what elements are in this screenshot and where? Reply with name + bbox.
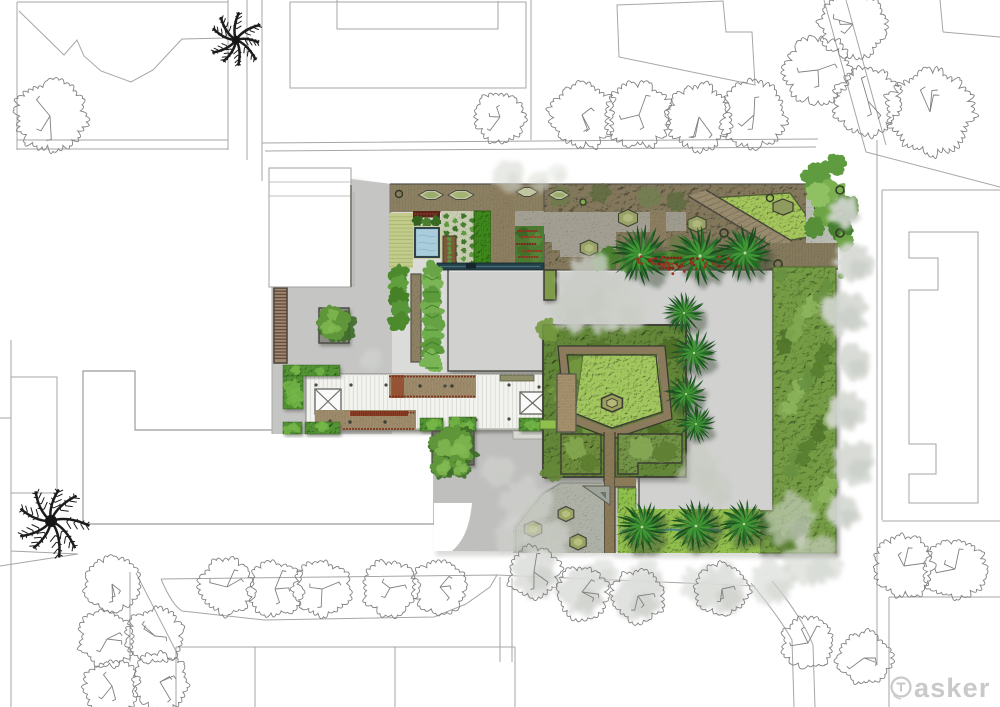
svg-text:asker: asker — [914, 673, 991, 703]
